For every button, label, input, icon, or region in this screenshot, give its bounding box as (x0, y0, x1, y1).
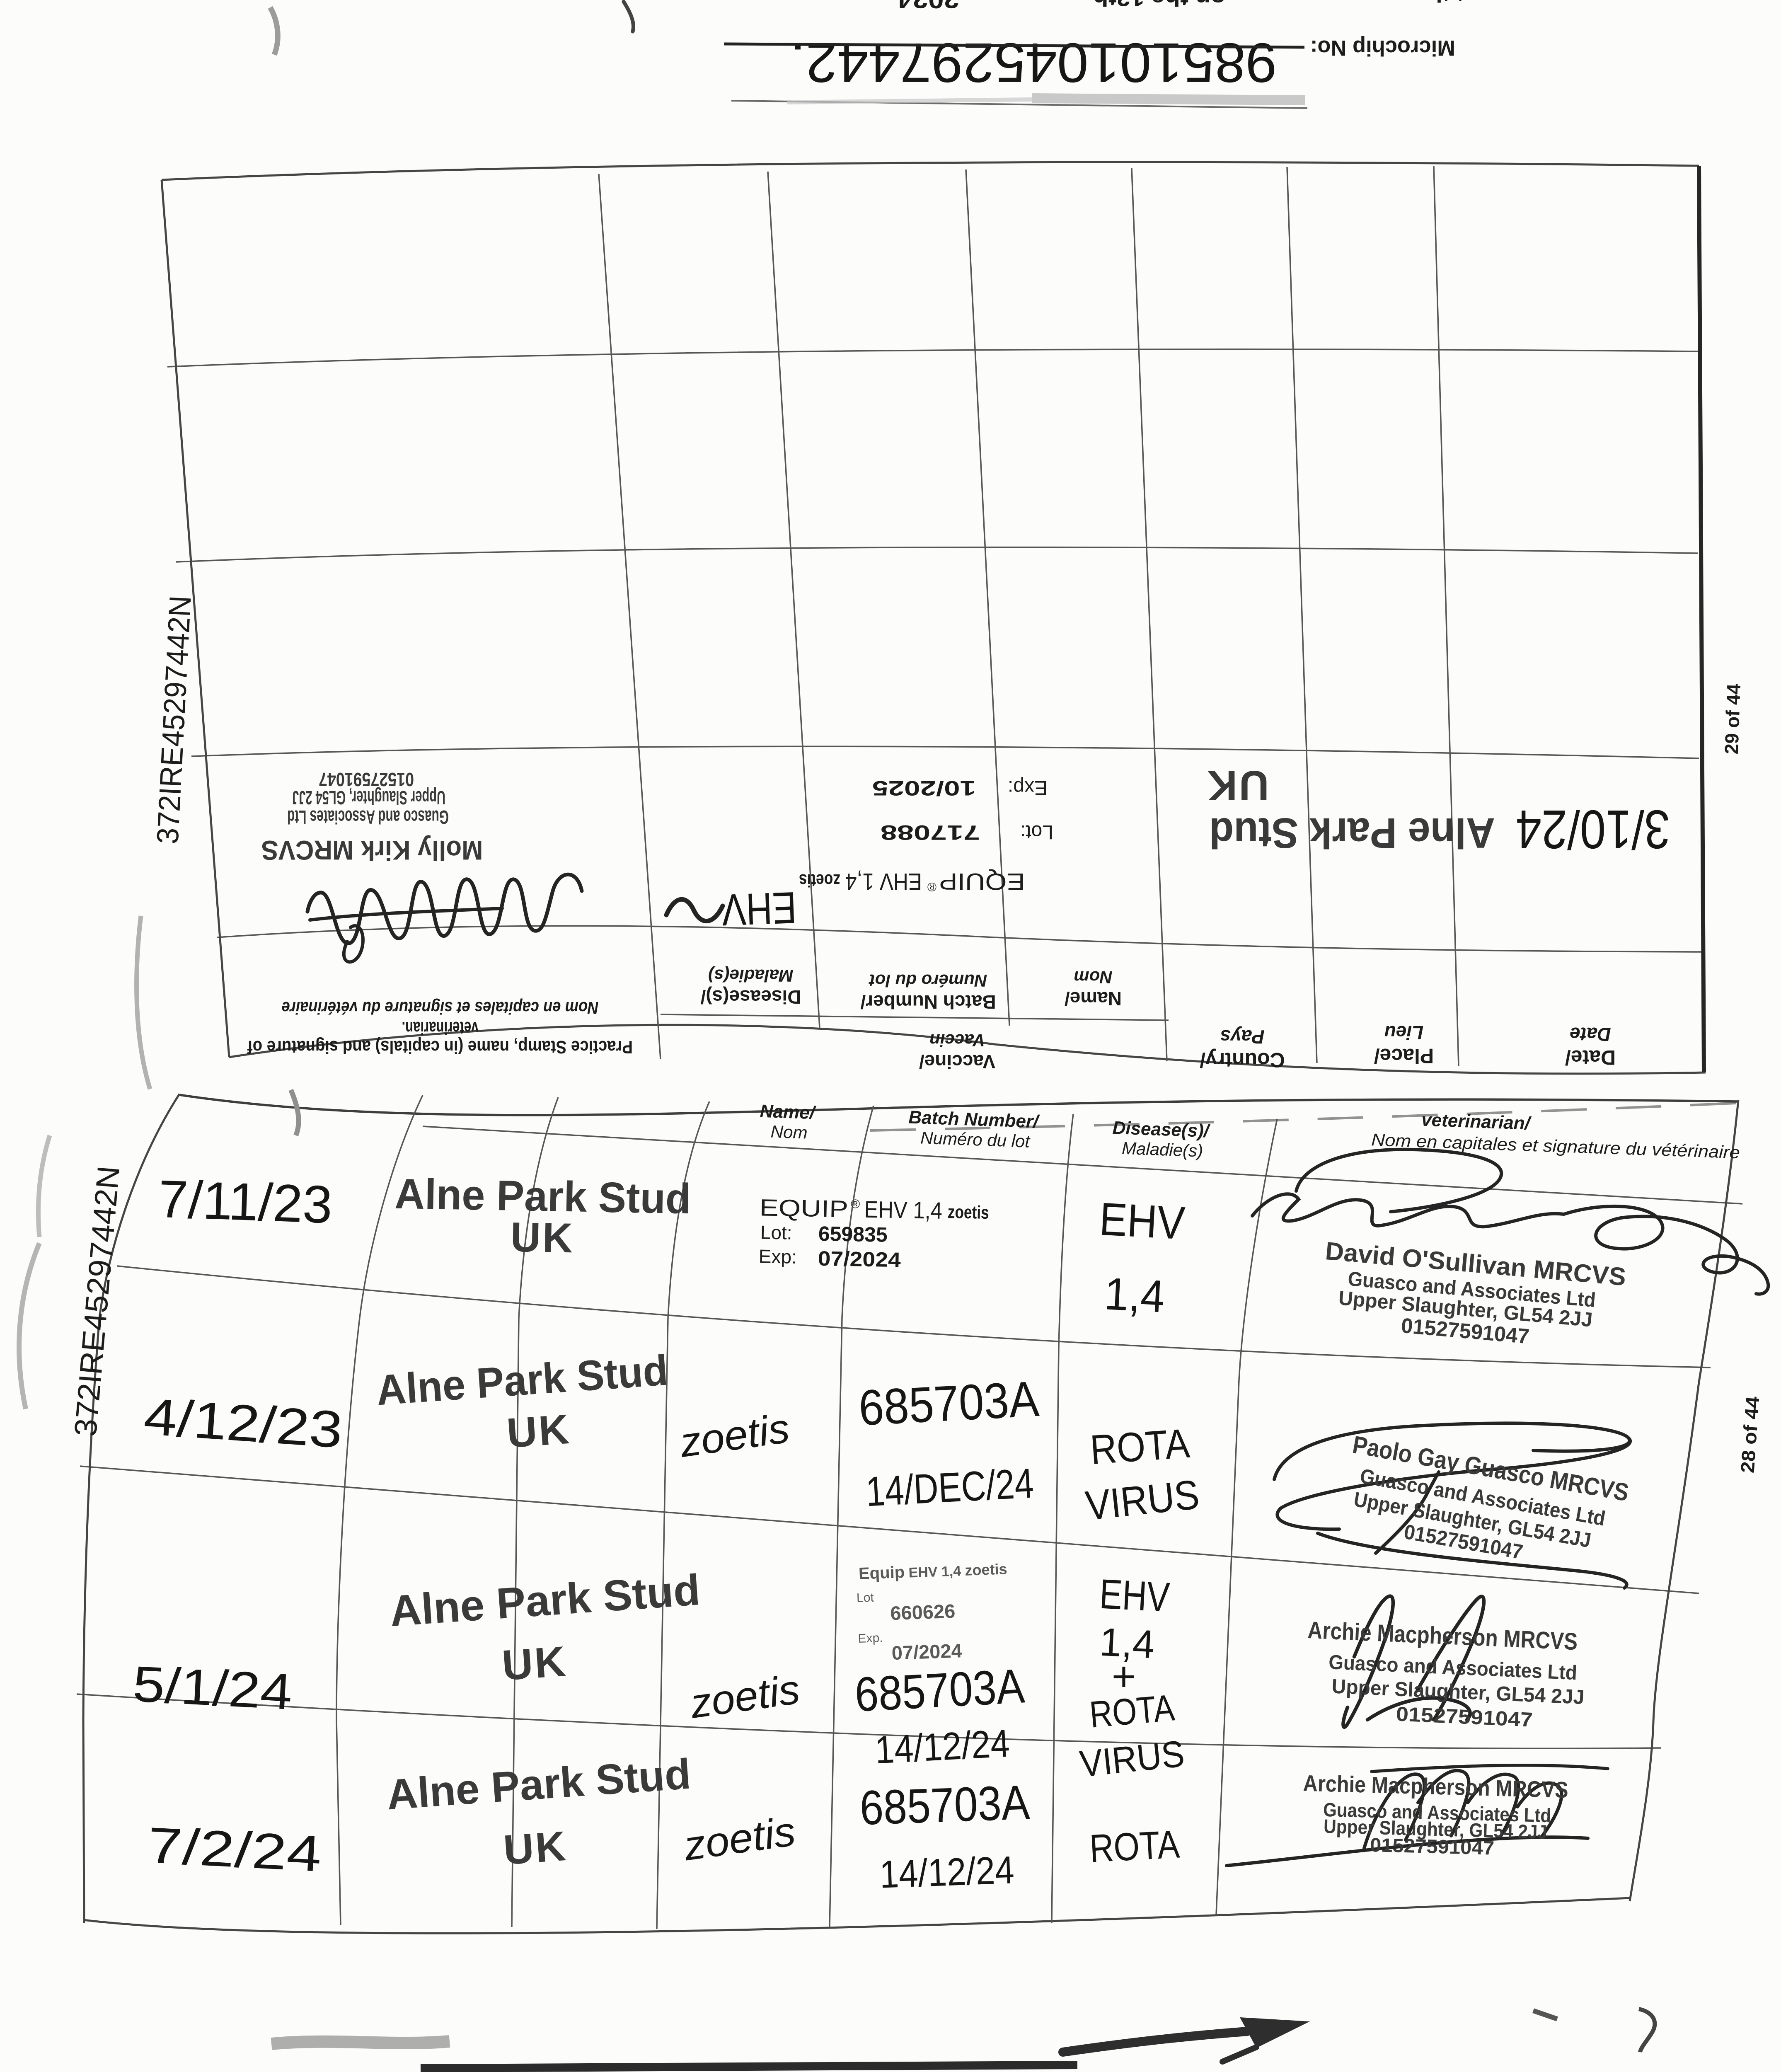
svg-text:Alne Park Stud: Alne Park Stud (1209, 809, 1495, 857)
svg-text:Nom: Nom (770, 1122, 808, 1143)
svg-text:®: ® (927, 880, 936, 893)
svg-text:Maladie(s): Maladie(s) (1121, 1138, 1203, 1161)
svg-text:Numéro du lot: Numéro du lot (920, 1128, 1031, 1151)
svg-text:685703A: 685703A (859, 1775, 1031, 1835)
svg-text:veterinarian.: veterinarian. (402, 1018, 479, 1038)
svg-text:UK: UK (505, 1406, 572, 1457)
svg-text:5/1/24: 5/1/24 (131, 1656, 294, 1720)
svg-text:Numéro du lot: Numéro du lot (869, 971, 987, 990)
svg-text:985101045297442.: 985101045297442. (790, 31, 1277, 94)
svg-text:Disease(s)/: Disease(s)/ (1112, 1118, 1211, 1141)
svg-text:Upper Slaughter, GL54 2JJ: Upper Slaughter, GL54 2JJ (292, 787, 445, 808)
svg-text:659835: 659835 (818, 1222, 888, 1247)
svg-text:29 of 44: 29 of 44 (1721, 683, 1745, 755)
svg-text:Vaccine/: Vaccine/ (919, 1051, 995, 1072)
svg-text:on the 12th: on the 12th (1093, 0, 1226, 11)
svg-text:Lot:: Lot: (760, 1221, 792, 1243)
svg-text:Nom en capitales et signature: Nom en capitales et signature du vétérin… (282, 998, 599, 1018)
svg-text:Exp:: Exp: (758, 1245, 797, 1268)
svg-text:7/11/23: 7/11/23 (157, 1169, 334, 1235)
svg-text:ROTA: ROTA (1089, 1822, 1181, 1871)
svg-text:Name/: Name/ (1065, 988, 1122, 1009)
svg-text:Lot: Lot (856, 1591, 874, 1605)
svg-text:Name/: Name/ (760, 1101, 817, 1123)
svg-text:UK: UK (510, 1214, 575, 1262)
svg-text:Pays: Pays (1220, 1026, 1264, 1048)
svg-text:717088: 717088 (881, 821, 980, 844)
svg-text:EHV: EHV (721, 883, 797, 935)
svg-text:1,4: 1,4 (1103, 1268, 1166, 1322)
svg-text:685703A: 685703A (857, 1370, 1041, 1436)
svg-text:EQUIP: EQUIP (939, 868, 1025, 895)
svg-text:Vaccin: Vaccin (929, 1031, 985, 1050)
svg-text:EHV 1,4: EHV 1,4 (845, 868, 922, 895)
svg-text:Date: Date (1570, 1024, 1611, 1045)
svg-text:EHV: EHV (1098, 1193, 1186, 1249)
svg-text:EHV 1,4: EHV 1,4 (864, 1196, 942, 1224)
svg-text:UK: UK (1206, 762, 1269, 808)
svg-text:Exp:: Exp: (1008, 777, 1048, 799)
svg-text:01527591047: 01527591047 (1370, 1834, 1494, 1859)
svg-text:Guasco and Associates Ltd: Guasco and Associates Ltd (287, 806, 449, 828)
svg-text:EHV: EHV (1099, 1571, 1171, 1621)
svg-text:at the: at the (1415, 0, 1477, 7)
svg-text:2024: 2024 (897, 0, 959, 13)
svg-text:14/DEC/24: 14/DEC/24 (865, 1460, 1035, 1515)
svg-text:Nom: Nom (1074, 968, 1112, 987)
svg-text:10/2025: 10/2025 (872, 777, 976, 800)
svg-text:UK: UK (501, 1637, 569, 1690)
svg-text:685703A: 685703A (854, 1658, 1026, 1721)
svg-text:Disease(s)/: Disease(s)/ (700, 986, 801, 1008)
svg-text:Microchip No:: Microchip No: (1310, 36, 1455, 60)
svg-text:Date/: Date/ (1565, 1046, 1616, 1069)
svg-text:Lot:: Lot: (1020, 821, 1053, 843)
svg-text:Country/: Country/ (1200, 1048, 1285, 1072)
svg-text:®: ® (851, 1197, 860, 1211)
svg-text:EQUIP: EQUIP (759, 1194, 848, 1222)
svg-text:zoetis: zoetis (799, 870, 840, 891)
svg-text:Molly Kirk MRCVS: Molly Kirk MRCVS (261, 835, 483, 866)
svg-text:3/10/24: 3/10/24 (1516, 799, 1670, 860)
svg-text:zoetis: zoetis (947, 1202, 989, 1223)
svg-text:ROTA: ROTA (1089, 1420, 1191, 1473)
svg-text:14/12/24: 14/12/24 (879, 1848, 1015, 1896)
svg-text:Place/: Place/ (1374, 1044, 1434, 1067)
svg-text:Batch Number/: Batch Number/ (860, 991, 996, 1013)
svg-text:07/2024: 07/2024 (891, 1639, 963, 1664)
svg-text:Practice Stamp, name (in capit: Practice Stamp, name (in capitals) and s… (247, 1037, 633, 1057)
svg-text:07/2024: 07/2024 (818, 1247, 901, 1271)
svg-text:14/12/24: 14/12/24 (874, 1721, 1011, 1772)
svg-text:660626: 660626 (890, 1600, 956, 1624)
svg-text:Exp.: Exp. (858, 1631, 883, 1646)
svg-text:Maladie(s): Maladie(s) (708, 966, 793, 985)
svg-text:7/2/24: 7/2/24 (146, 1817, 323, 1882)
svg-text:ROTA: ROTA (1088, 1687, 1176, 1736)
svg-text:veterinarian/: veterinarian/ (1421, 1110, 1532, 1134)
svg-text:UK: UK (502, 1823, 569, 1874)
svg-text:Lieu: Lieu (1384, 1022, 1424, 1043)
